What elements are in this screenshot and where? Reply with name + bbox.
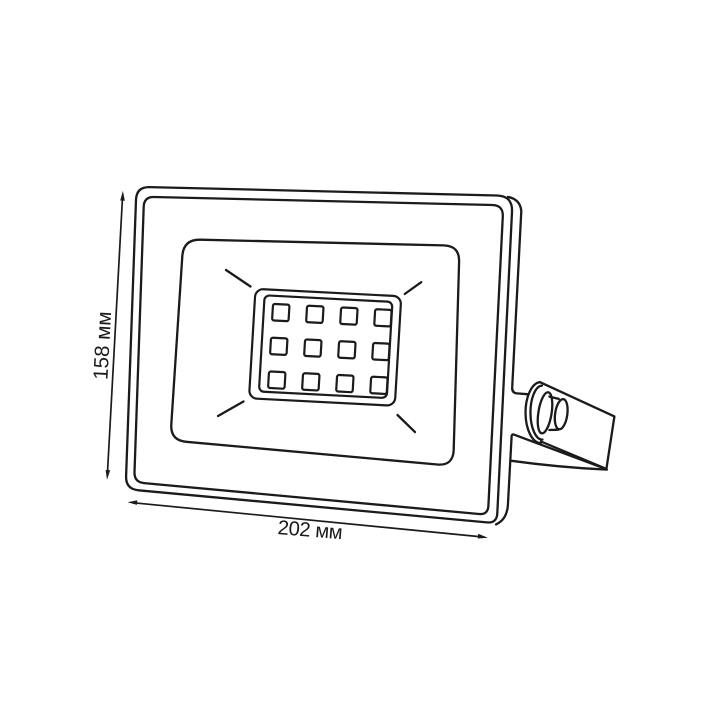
svg-text:158 мм: 158 мм: [89, 311, 116, 381]
